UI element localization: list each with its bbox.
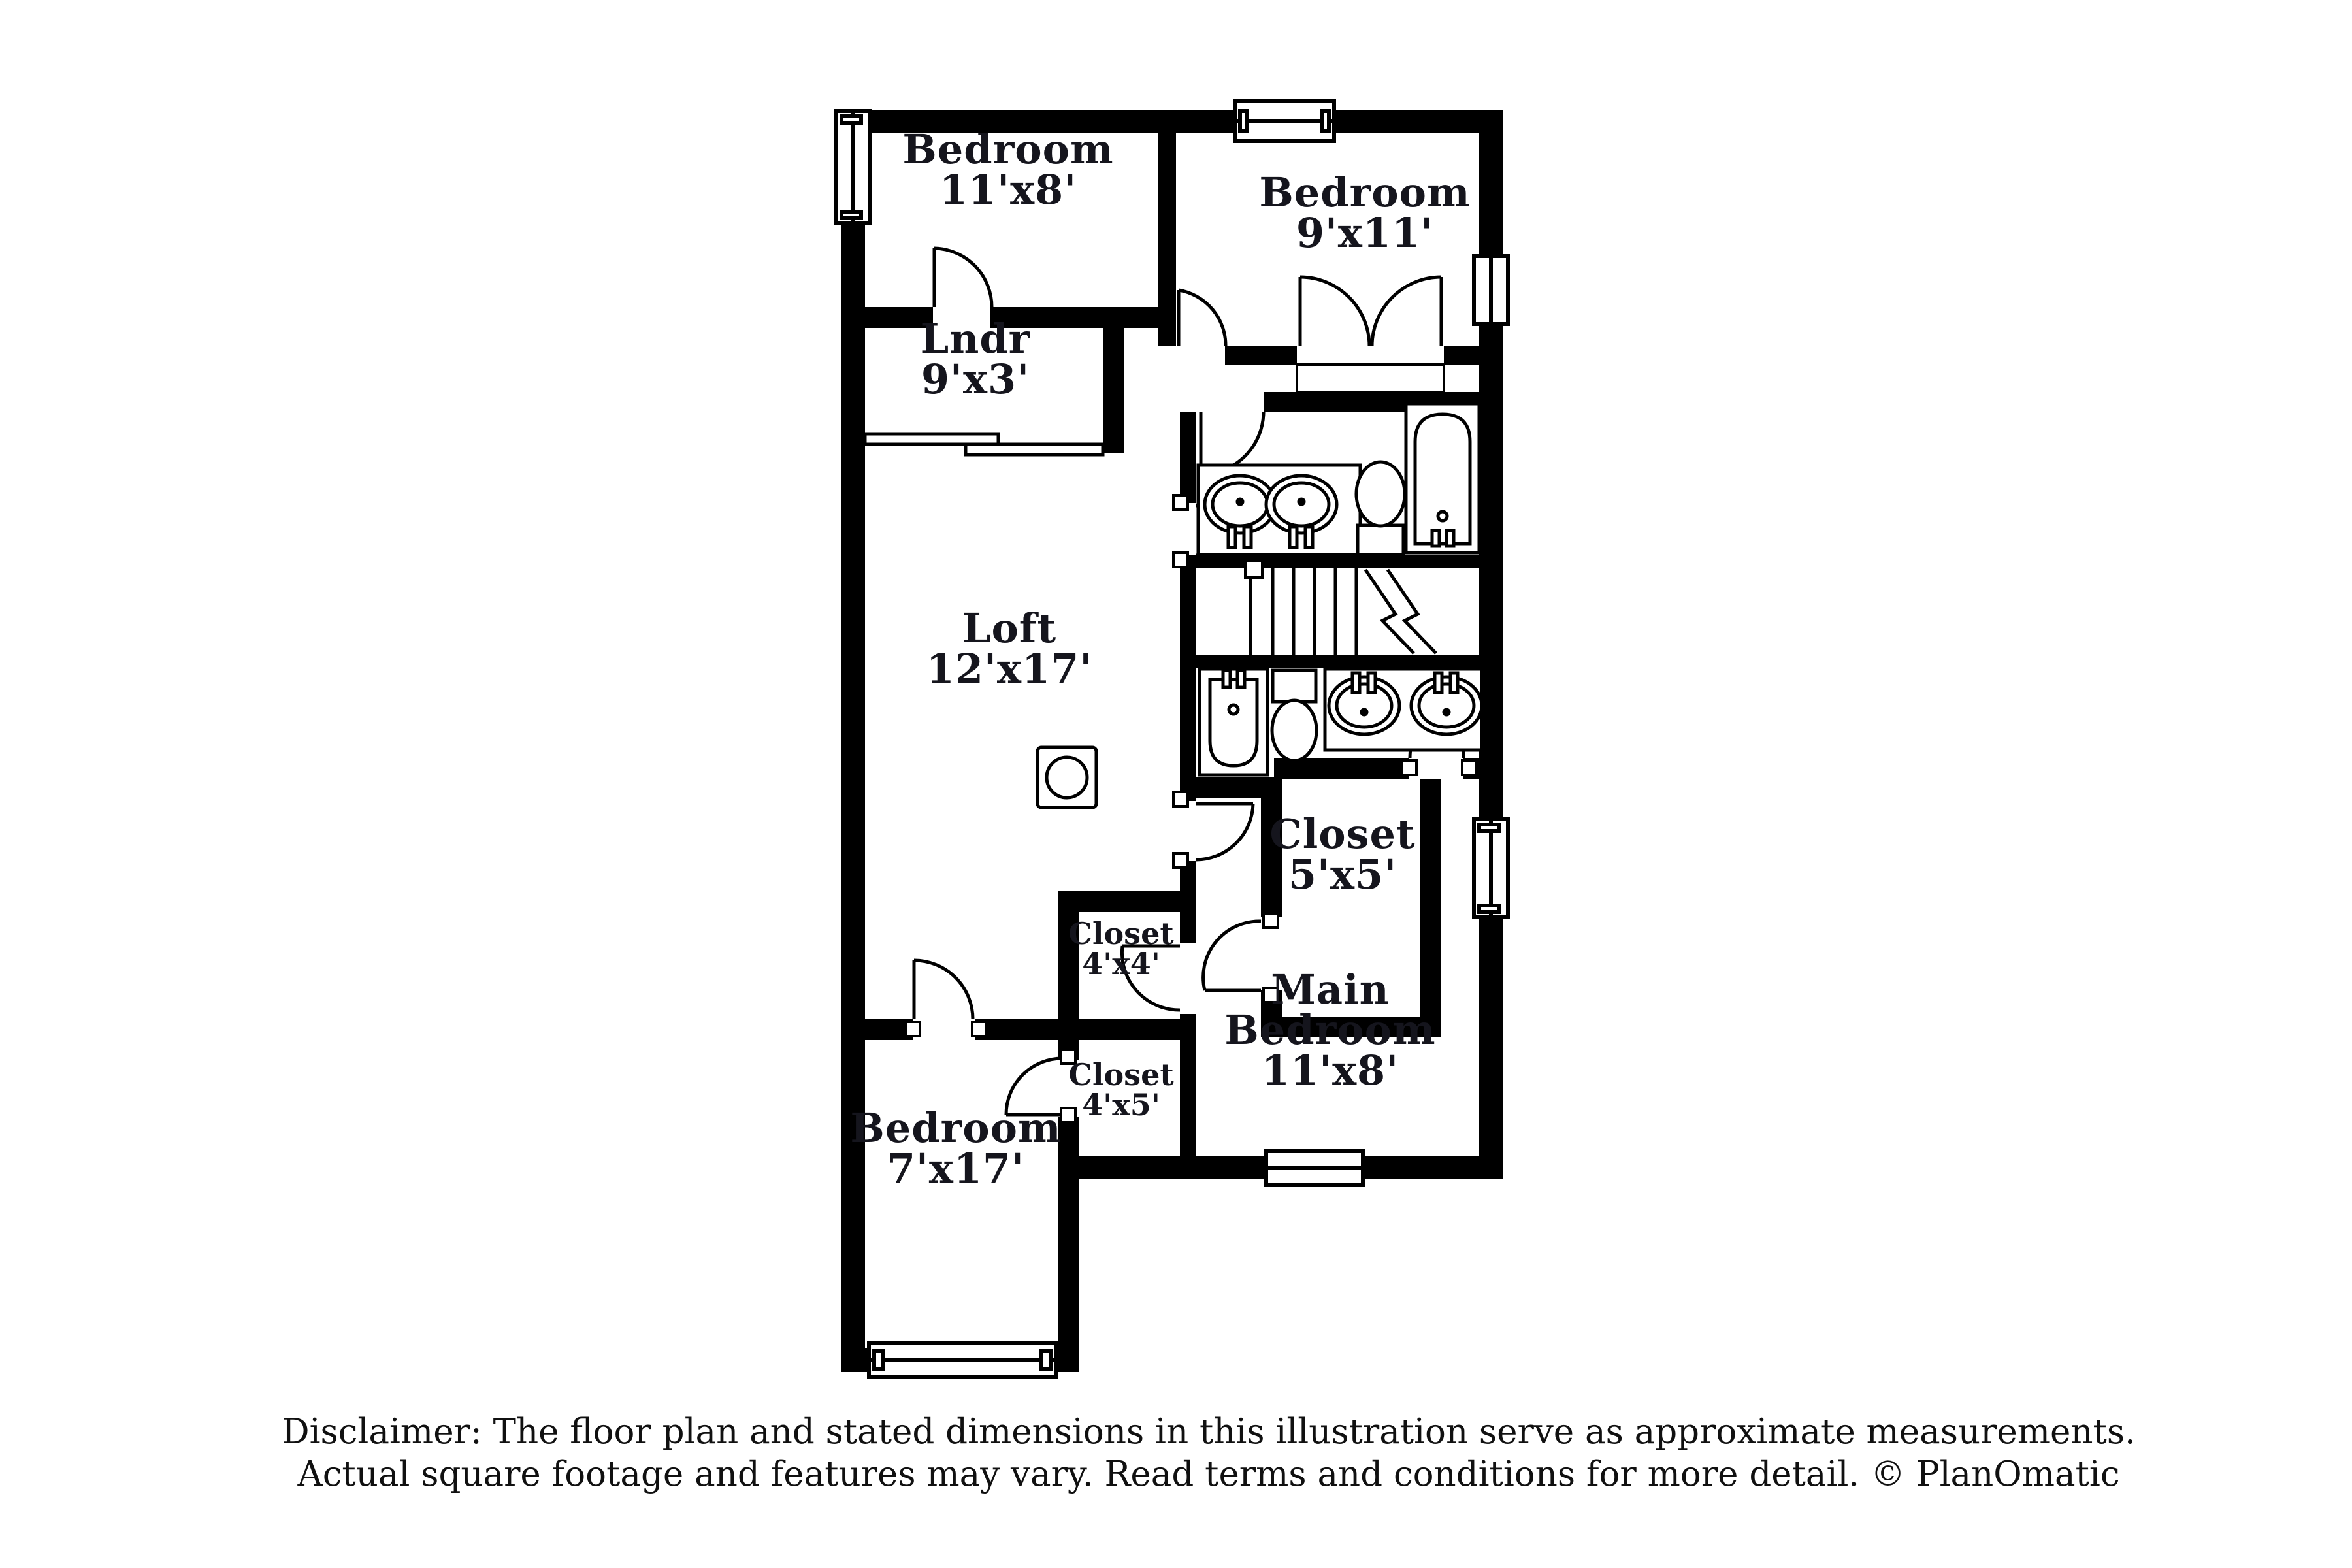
floorplan-page: { "document_type": "floor-plan", "colors…: [0, 0, 2352, 1568]
room-label-loft: Loft 12'x17': [926, 608, 1093, 689]
bathtub-icon: [1200, 669, 1267, 775]
window-east-bedroom9x11: [1474, 256, 1508, 324]
room-label-closet-4x5: Closet 4'x5': [1068, 1060, 1173, 1120]
room-name: Loft: [926, 608, 1093, 649]
window-west-bedroom11x8: [836, 111, 870, 223]
room-dims: 4'x4': [1068, 949, 1173, 979]
wall-bedroom-divider: [1158, 133, 1176, 346]
vanity-double-sink: [1325, 669, 1482, 750]
room-label-laundry: Lndr 9'x3': [921, 319, 1031, 400]
room-name: Lndr: [921, 319, 1031, 359]
door-loft-to-hall: [1196, 804, 1253, 860]
window-top: [1235, 101, 1334, 141]
room-label-closet-5x5: Closet 5'x5': [1269, 814, 1415, 895]
disclaimer-line-1: Disclaimer: The floor plan and stated di…: [282, 1411, 2136, 1454]
room-name: Closet: [1068, 1060, 1173, 1090]
room-label-main-bedroom: Main Bedroom 11'x8': [1224, 970, 1435, 1091]
room-label-closet-4x4: Closet 4'x4': [1068, 919, 1173, 979]
room-dims: 12'x17': [926, 649, 1093, 689]
room-dims: 4'x5': [1068, 1090, 1173, 1120]
disclaimer-line-2: Actual square footage and features may v…: [282, 1454, 2136, 1496]
room-dims: 11'x8': [902, 170, 1113, 210]
bathtub-icon: [1406, 404, 1479, 553]
disclaimer: Disclaimer: The floor plan and stated di…: [282, 1411, 2136, 1495]
room-dims: 11'x8': [1224, 1051, 1435, 1091]
room-dims: 9'x11': [1259, 213, 1470, 253]
room-dims: 5'x5': [1269, 855, 1415, 895]
wall-east-bedroom7: [1058, 1179, 1079, 1372]
wall-stairs-south: [1196, 655, 1482, 668]
wall-bath-top-south: [1180, 555, 1482, 568]
room-name: Main: [1224, 970, 1435, 1010]
room-name: Bedroom: [850, 1108, 1061, 1149]
bathroom-top-fixtures: [1198, 404, 1479, 555]
room-name: Closet: [1068, 919, 1173, 949]
window-south-main-bedroom: [1266, 1151, 1363, 1185]
stair-newel: [1245, 561, 1262, 578]
closet-strip-bedroom9x11: [1297, 365, 1444, 392]
room-dims: 9'x3': [921, 359, 1031, 400]
window-east-main-bedroom: [1474, 819, 1508, 917]
door-bedroom9x11: [1179, 290, 1226, 346]
wall-laundry-east: [1103, 328, 1124, 453]
floorplan-drawing: [0, 0, 2352, 1568]
room-name: Bedroom: [1224, 1010, 1435, 1051]
room-dims: 7'x17': [850, 1149, 1061, 1189]
door-bedroom7x17: [914, 960, 973, 1019]
toilet-icon: [1272, 670, 1316, 760]
toilet-icon: [1356, 462, 1405, 555]
double-door-bedroom9x11-closet: [1300, 277, 1441, 346]
window-bottom-bedroom7: [869, 1343, 1056, 1377]
room-name: Bedroom: [1259, 172, 1470, 213]
stair-break-line: [1365, 570, 1414, 653]
room-name: Bedroom: [902, 129, 1113, 170]
room-label-bedroom-9x11: Bedroom 9'x11': [1259, 172, 1470, 253]
room-label-bedroom-11x8: Bedroom 11'x8': [902, 129, 1113, 210]
sliding-doors-laundry: [865, 434, 1103, 455]
door-bedroom11x8: [934, 248, 992, 307]
staircase: [1245, 561, 1436, 655]
appliance-icon: [1037, 747, 1096, 808]
room-name: Closet: [1269, 814, 1415, 855]
room-label-bedroom-7x17: Bedroom 7'x17': [850, 1108, 1061, 1189]
vanity-double-sink: [1198, 465, 1360, 555]
